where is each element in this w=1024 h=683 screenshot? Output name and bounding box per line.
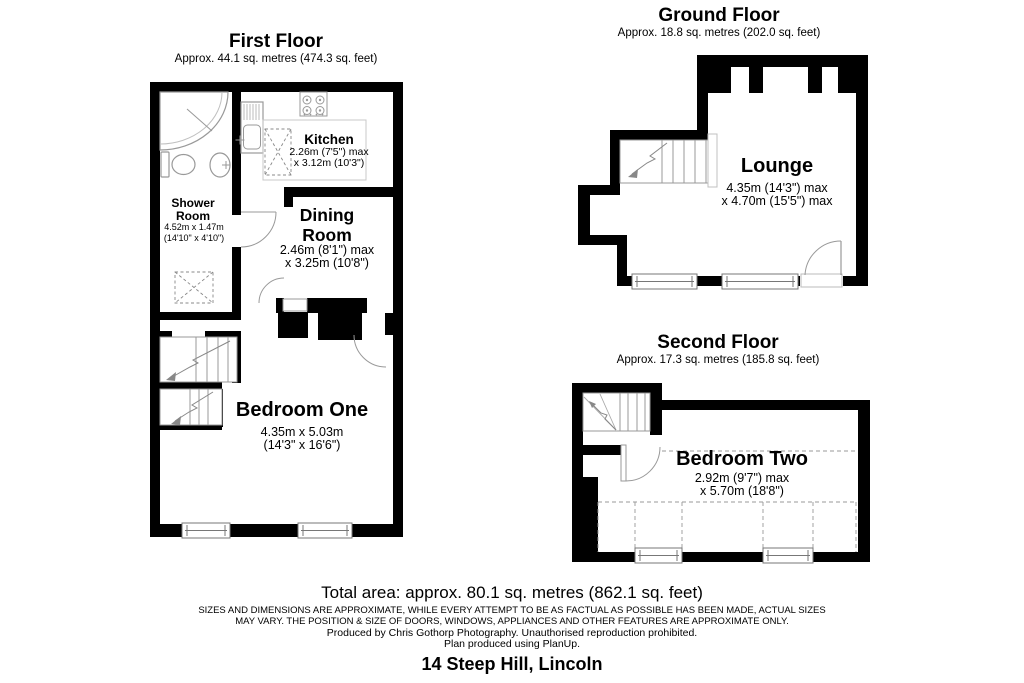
door-arc [801,241,842,287]
room-dim-dining-room-2: x 3.25m (10'8") [285,256,369,270]
ground-floor-title: Ground Floor [658,5,779,26]
room-label-lounge: Lounge [741,155,813,177]
ground-floor-area: Approx. 18.8 sq. metres (202.0 sq. feet) [618,27,821,40]
staircase [583,393,650,431]
rooflight-icon [265,129,291,175]
room-dim-dining-room-1: 2.46m (8'1") max [280,243,374,257]
staircase [620,134,717,187]
window [632,274,697,289]
window [722,274,798,289]
room-dim-shower-room-1: 4.52m x 1.47m [164,222,224,232]
room-dim-bedroom-one-1: 4.35m x 5.03m [261,425,344,439]
room-dim-bedroom-two-2: x 5.70m (18'8") [700,484,784,498]
staircase [160,337,237,382]
room-label-kitchen: Kitchen [304,132,354,147]
door-arc [621,445,660,481]
room-dim-kitchen-2: x 3.12m (10'3") [294,158,365,170]
total-area: Total area: approx. 80.1 sq. metres (862… [321,583,703,602]
room-label-bedroom-one: Bedroom One [236,399,368,421]
toilet-icon [161,152,195,177]
basin-icon [210,153,230,177]
room-dim-bedroom-two-1: 2.92m (9'7") max [695,471,789,485]
floorplan-graphics [0,0,1024,683]
room-dim-bedroom-one-2: (14'3" x 16'6") [264,438,341,452]
door-arc [259,278,307,311]
room-label-bedroom-two: Bedroom Two [676,448,808,470]
first-floor-area: Approx. 44.1 sq. metres (474.3 sq. feet) [175,53,378,66]
floorplan-page: First Floor Approx. 44.1 sq. metres (474… [0,0,1024,683]
second-floor-area: Approx. 17.3 sq. metres (185.8 sq. feet) [617,354,820,367]
window [182,523,230,538]
window [298,523,352,538]
window [763,548,813,563]
door-arc [241,212,276,247]
staircase [160,389,222,425]
room-dim-lounge-1: 4.35m (14'3") max [726,181,827,195]
plan-software: Plan produced using PlanUp. [444,639,580,651]
rooflight-icon [175,272,213,303]
room-dim-lounge-2: x 4.70m (15'5") max [721,194,832,208]
room-dim-shower-room-2: (14'10" x 4'10") [164,233,224,243]
shower-icon [160,92,228,150]
property-address: 14 Steep Hill, Lincoln [421,654,602,674]
ground-floor-plan [578,55,868,289]
room-label-dining-room: Dining Room [287,206,367,245]
window [635,548,682,563]
hob-icon [300,92,327,116]
second-floor-title: Second Floor [657,332,778,353]
room-label-shower-room: Shower Room [160,197,226,224]
first-floor-title: First Floor [229,31,323,52]
